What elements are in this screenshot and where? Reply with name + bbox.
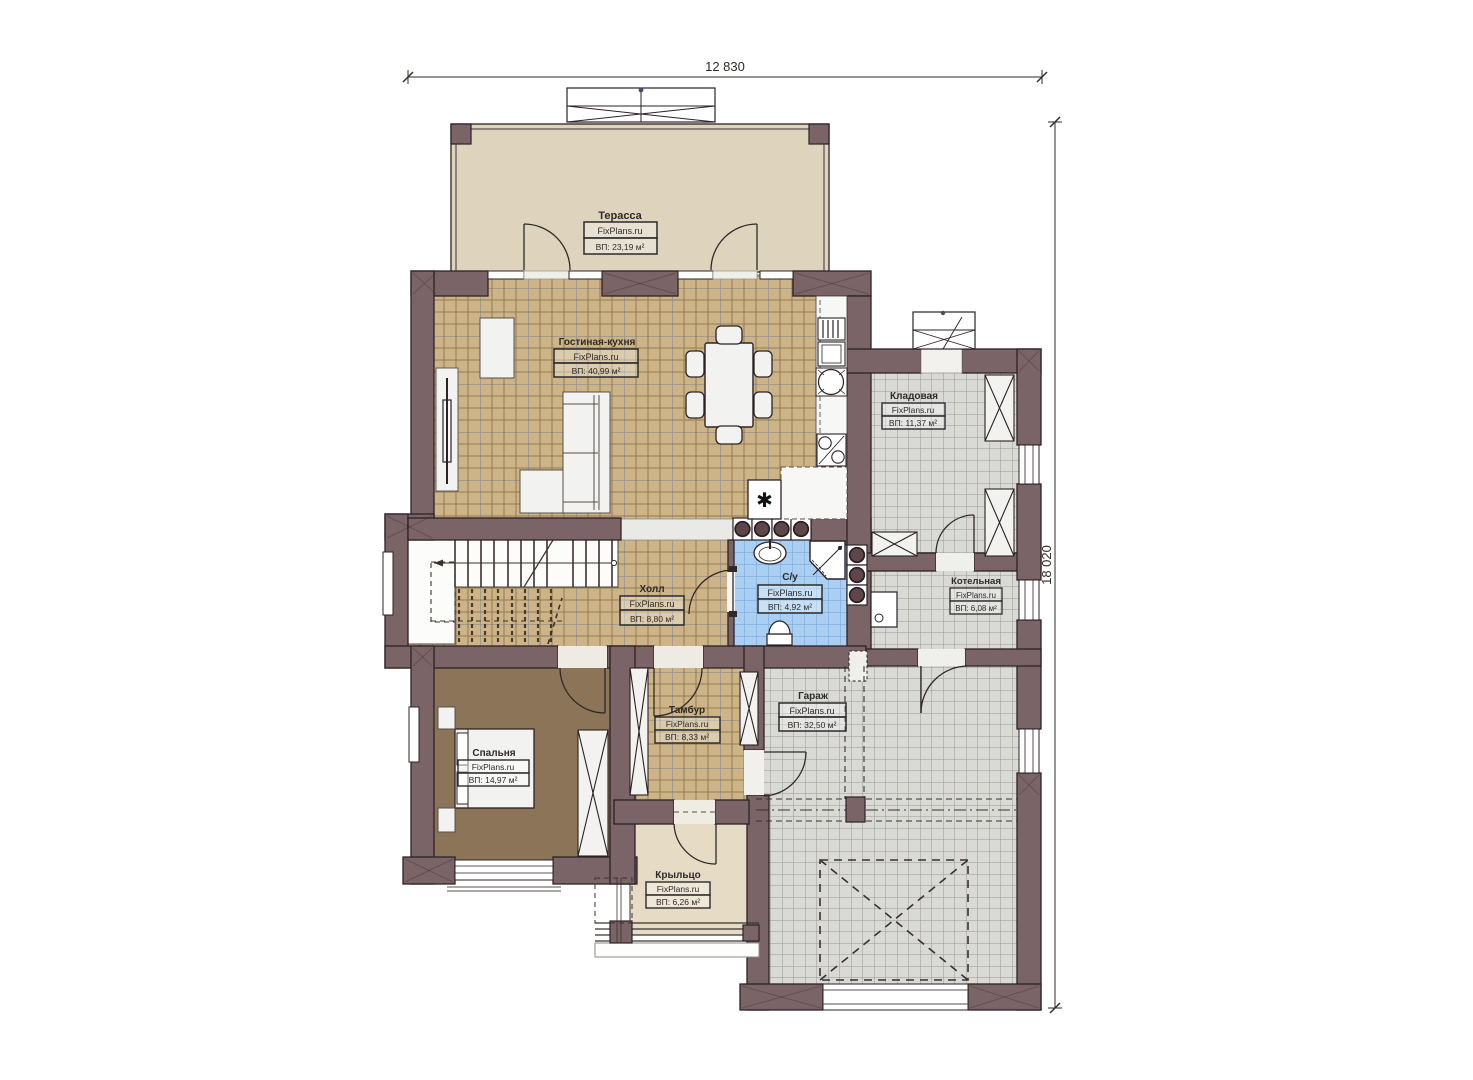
svg-text:Кладовая: Кладовая [890, 391, 938, 402]
svg-text:✱: ✱ [756, 490, 773, 512]
svg-text:ВП: 8,33 м²: ВП: 8,33 м² [665, 732, 709, 742]
svg-text:ВП: 6,08 м²: ВП: 6,08 м² [955, 604, 997, 613]
svg-text:Холл: Холл [639, 584, 664, 595]
svg-text:FixPlans.ru: FixPlans.ru [472, 762, 515, 772]
svg-text:Котельная: Котельная [951, 576, 1001, 587]
svg-text:FixPlans.ru: FixPlans.ru [597, 226, 642, 236]
svg-text:ВП: 6,26 м²: ВП: 6,26 м² [656, 897, 700, 907]
svg-text:Крыльцо: Крыльцо [655, 870, 701, 881]
svg-text:FixPlans.ru: FixPlans.ru [657, 884, 700, 894]
svg-text:ВП: 14,97 м²: ВП: 14,97 м² [469, 775, 518, 785]
svg-text:12 830: 12 830 [705, 59, 745, 74]
svg-text:ВП: 8,80 м²: ВП: 8,80 м² [630, 614, 674, 624]
svg-text:ВП: 23,19 м²: ВП: 23,19 м² [596, 242, 645, 252]
svg-text:FixPlans.ru: FixPlans.ru [767, 588, 812, 598]
svg-text:FixPlans.ru: FixPlans.ru [629, 599, 674, 609]
svg-text:FixPlans.ru: FixPlans.ru [666, 719, 709, 729]
svg-text:ВП: 4,92 м²: ВП: 4,92 м² [768, 602, 812, 612]
svg-text:FixPlans.ru: FixPlans.ru [892, 405, 935, 415]
svg-text:ВП: 11,37 м²: ВП: 11,37 м² [889, 418, 937, 428]
svg-text:Спальня: Спальня [472, 748, 515, 759]
svg-text:С/у: С/у [782, 572, 798, 583]
svg-text:Тамбур: Тамбур [669, 704, 705, 716]
svg-text:ВП: 40,99 м²: ВП: 40,99 м² [572, 366, 621, 376]
svg-text:FixPlans.ru: FixPlans.ru [573, 352, 618, 362]
svg-text:Гараж: Гараж [798, 691, 829, 702]
svg-text:18 020: 18 020 [1039, 545, 1054, 585]
svg-text:FixPlans.ru: FixPlans.ru [789, 706, 834, 716]
svg-text:ВП: 32,50 м²: ВП: 32,50 м² [788, 720, 837, 730]
svg-text:Терасса: Терасса [598, 210, 642, 222]
svg-text:FixPlans.ru: FixPlans.ru [956, 591, 996, 600]
svg-text:Гостиная-кухня: Гостиная-кухня [559, 337, 636, 348]
